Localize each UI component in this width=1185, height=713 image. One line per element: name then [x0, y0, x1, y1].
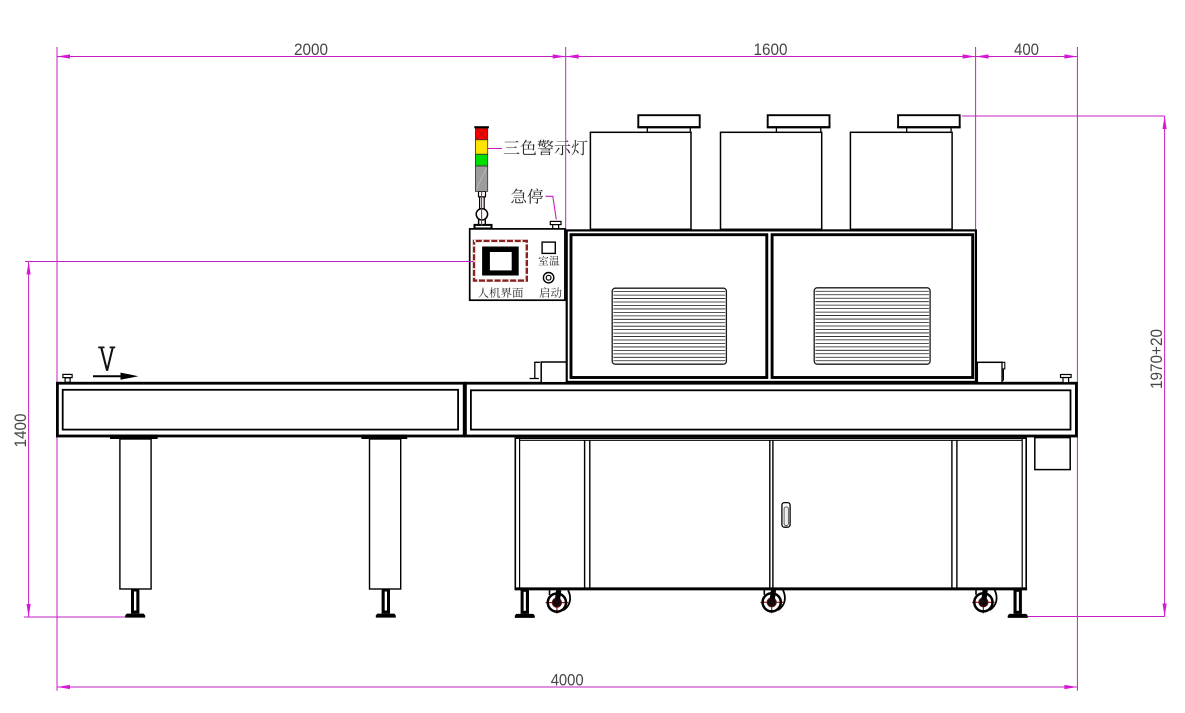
svg-text:4000: 4000 [551, 671, 584, 690]
svg-text:1970+20: 1970+20 [1147, 329, 1166, 389]
svg-text:1600: 1600 [754, 40, 788, 59]
svg-text:1400: 1400 [11, 414, 30, 448]
svg-text:2000: 2000 [294, 40, 328, 59]
svg-text:400: 400 [1014, 40, 1039, 59]
